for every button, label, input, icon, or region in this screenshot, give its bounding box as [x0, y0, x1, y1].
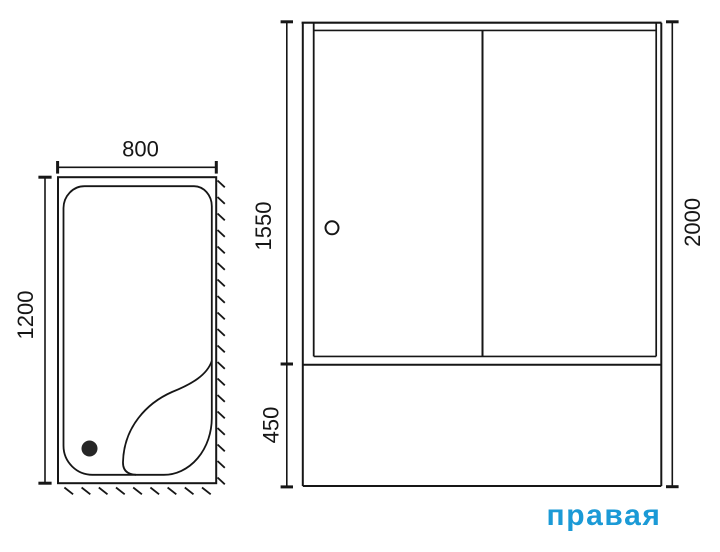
svg-text:правая: правая [547, 499, 662, 532]
svg-text:450: 450 [259, 407, 284, 444]
svg-text:1550: 1550 [251, 202, 276, 251]
svg-text:800: 800 [122, 136, 159, 161]
svg-text:2000: 2000 [680, 198, 705, 247]
svg-text:1200: 1200 [13, 291, 38, 340]
